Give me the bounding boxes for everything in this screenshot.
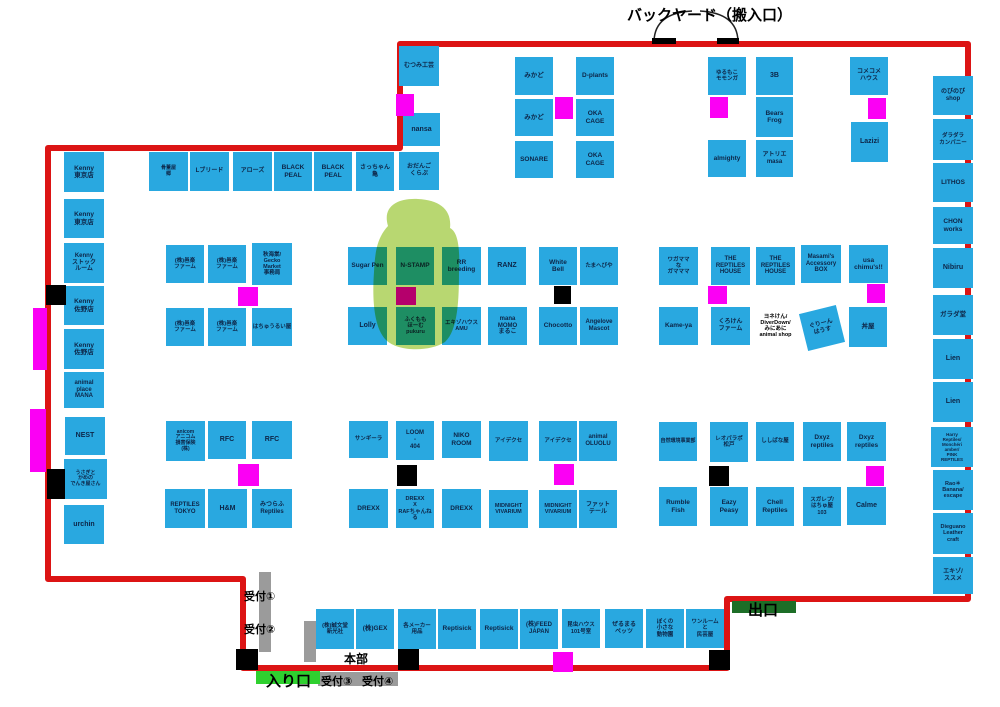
black-marker: [717, 38, 739, 44]
booth: H&M: [208, 489, 247, 528]
magenta-marker: [555, 97, 573, 119]
booth: Rumble Fish: [659, 487, 697, 526]
booth: Lブリード: [190, 152, 229, 191]
booth: ワガママ な ガマママ: [659, 247, 698, 285]
magenta-marker: [710, 97, 728, 118]
booth: サンギーラ: [349, 421, 388, 458]
magenta-marker: [238, 464, 259, 486]
booth: Reptisick: [480, 609, 518, 649]
booth: のびのび shop: [933, 76, 973, 115]
booth: うさぎと かめの でんき屋さん: [64, 459, 107, 499]
booth: LOOM - 404: [396, 421, 434, 460]
booth: ワンルーム と 民芸屋: [686, 609, 724, 648]
booth: Reptisick: [438, 609, 476, 649]
booth: ぼくの 小さな 動物園: [646, 609, 684, 648]
booth: RANZ: [488, 247, 526, 285]
booth: たまへびや: [580, 247, 618, 285]
booth: DREXX: [349, 489, 388, 528]
booth: (株)邑楽 ファーム: [208, 245, 246, 283]
map-label: 受付④: [362, 673, 393, 689]
booth: OKA CAGE: [576, 141, 614, 178]
booth: animal place MANA: [64, 372, 104, 408]
booth: 3B: [756, 57, 793, 95]
booth: RFC: [252, 421, 292, 459]
magenta-marker: [708, 286, 727, 304]
booth: Kenny 佐野店: [64, 329, 104, 369]
black-marker: [652, 38, 676, 44]
backyard-label: バックヤード（搬入口）: [627, 4, 792, 25]
booth: Rao＊ Banana/ escape: [933, 470, 973, 510]
magenta-marker: [33, 308, 47, 370]
booth: BLACK PEAL: [274, 152, 312, 191]
booth: White Bell: [539, 247, 577, 285]
booth: DREXX: [442, 489, 481, 528]
black-marker: [236, 649, 258, 670]
booth: MIDNIGHT VIVARIUM: [539, 490, 577, 528]
booth: urchin: [64, 505, 104, 544]
booth: Bears Frog: [756, 97, 793, 137]
booth: アイデクセ: [539, 421, 577, 461]
magenta-marker: [553, 652, 573, 672]
booth: (株)邑楽 ファーム: [166, 245, 204, 283]
booth: Sugar Pen: [348, 247, 387, 285]
magenta-marker: [30, 409, 46, 472]
booth: アローズ: [233, 152, 272, 191]
booth: THE REPTILES HOUSE: [711, 247, 750, 285]
booth: 秋海棠/ Gecko Market 事務局: [252, 243, 292, 285]
booth: (株)邑楽 ファーム: [166, 308, 204, 346]
booth: ファット テール: [579, 490, 617, 528]
booth: 自然環境事業部: [659, 422, 697, 461]
booth: NEST: [65, 417, 105, 455]
booth: mana MOMO まるこ: [488, 307, 527, 345]
booth: スガレプ/ はちゅ屋 103: [803, 487, 841, 526]
booth: Masami's Accessory BOX: [801, 245, 841, 283]
booth: Kame-ya: [659, 307, 698, 345]
booth: 昆虫ハウス 101号室: [562, 609, 600, 648]
booth: N-STAMP: [396, 247, 434, 285]
booth: ガラダ堂: [933, 295, 973, 335]
wall-outline: [48, 44, 968, 668]
map-label: 受付①: [244, 588, 275, 604]
booth: almighty: [708, 140, 746, 177]
black-marker: [46, 285, 66, 305]
map-label: 本部: [344, 650, 368, 667]
black-marker: [709, 650, 730, 670]
booth: CHON works: [933, 207, 973, 244]
booth: (株)邑楽 ファーム: [208, 308, 246, 346]
booth: ゆるもこ モモンガ: [708, 57, 746, 95]
booth: Kenny ストック ルーム: [64, 243, 104, 283]
booth: エキゾ/ ススメ: [933, 557, 973, 594]
booth: (株)FEED JAPAN: [520, 609, 558, 649]
booth: Dxyz reptiles: [847, 422, 886, 461]
booth: Nibiru: [933, 248, 973, 288]
booth: NIKO ROOM: [442, 421, 481, 458]
magenta-marker: [396, 287, 416, 305]
booth: みかど: [515, 99, 553, 136]
booth: Dxyz reptiles: [803, 422, 841, 461]
booth: むつみ工芸: [399, 46, 439, 86]
venue-walls: [0, 0, 1000, 707]
booth: Lien: [933, 339, 973, 379]
booth: 各メーカー 用品: [398, 609, 436, 649]
map-label: 受付②: [244, 621, 275, 637]
booth: nansa: [403, 113, 440, 146]
booth: OKA CAGE: [576, 99, 614, 136]
booth: anicom アニコム 損害保険 (株): [166, 421, 205, 461]
booth: (株)GEX: [356, 609, 394, 649]
booth: 丼屋: [849, 307, 887, 347]
map-label: 出口: [748, 599, 778, 620]
black-marker: [709, 466, 729, 486]
booth: くろけん ファーム: [711, 307, 750, 345]
booth: SONARE: [515, 141, 553, 178]
venue-floor-map: バックヤード（搬入口） むつみ工芸nansa骨董屋 郷LブリードアローズBLAC…: [0, 0, 1000, 707]
booth: REPTILES TOKYO: [165, 489, 205, 528]
black-marker: [398, 649, 419, 670]
booth: Lien: [933, 382, 973, 422]
booth: アイデクセ: [489, 421, 528, 461]
booth: おだんご くらぶ: [399, 152, 439, 190]
black-marker: [47, 469, 65, 499]
booth: アトリエ masa: [756, 140, 793, 177]
map-label: 入り口: [266, 670, 311, 691]
magenta-marker: [868, 98, 886, 119]
booth: usa chimu's!!: [849, 245, 888, 283]
booth: コメコメ ハウス: [850, 57, 888, 95]
booth: Lazizi: [851, 122, 888, 162]
booth: RR breeding: [442, 247, 481, 285]
booth: Kenny 東京店: [64, 152, 104, 192]
booth: BLACK PEAL: [314, 152, 352, 191]
booth: Angelove Mascot: [580, 307, 618, 345]
booth: Chell Reptiles: [756, 487, 794, 526]
booth: エキゾハウス AMU: [442, 307, 481, 345]
booth: (株)誠文堂 新光社: [316, 609, 354, 649]
booth: ふくもも ほーむ pukuru: [396, 307, 435, 345]
booth: 骨董屋 郷: [149, 152, 188, 191]
black-marker: [554, 286, 571, 304]
booth: animal OLUOLU: [579, 421, 617, 461]
booth: D-plants: [576, 57, 614, 95]
booth: ヨネけん/ DiverDown/ みにあに animal shop: [752, 299, 799, 353]
booth: Kenny 東京店: [64, 199, 104, 238]
booth: ししばな屋: [756, 422, 794, 461]
map-label: 受付③: [321, 673, 352, 689]
booth: Dieguano Leather craft: [933, 513, 973, 554]
booth: はちゅうるい屋: [252, 308, 292, 346]
booth: ぜるまる ペッツ: [605, 609, 643, 648]
booth: ダラダラ カンパニー: [933, 119, 973, 160]
black-marker: [397, 465, 417, 486]
booth: THE REPTILES HOUSE: [756, 247, 795, 285]
magenta-marker: [396, 94, 414, 116]
booth: Kenny 佐野店: [64, 286, 104, 325]
booth: DREXX X RAFちゃんねる: [396, 489, 434, 528]
booth: みかど: [515, 57, 553, 95]
magenta-marker: [866, 466, 884, 486]
booth: MIDNIGHT VIVARIUM: [489, 490, 528, 528]
magenta-marker: [867, 284, 885, 303]
booth: LITHOS: [933, 163, 973, 202]
booth: さっちゃん 亀: [356, 152, 394, 191]
booth: RFC: [208, 421, 246, 459]
booth: Calme: [847, 487, 886, 525]
magenta-marker: [554, 464, 574, 485]
booth: Lolly: [348, 307, 387, 345]
booth: Harry Reptiles/ Monchéri amber/ PINK REP…: [931, 427, 973, 467]
booth: みつらふ Reptiles: [252, 489, 292, 528]
booth: Eazy Peasy: [710, 487, 748, 526]
booth: Chocotto: [539, 307, 577, 345]
magenta-marker: [238, 287, 258, 306]
booth: レオパラボ 松戸: [710, 422, 748, 462]
